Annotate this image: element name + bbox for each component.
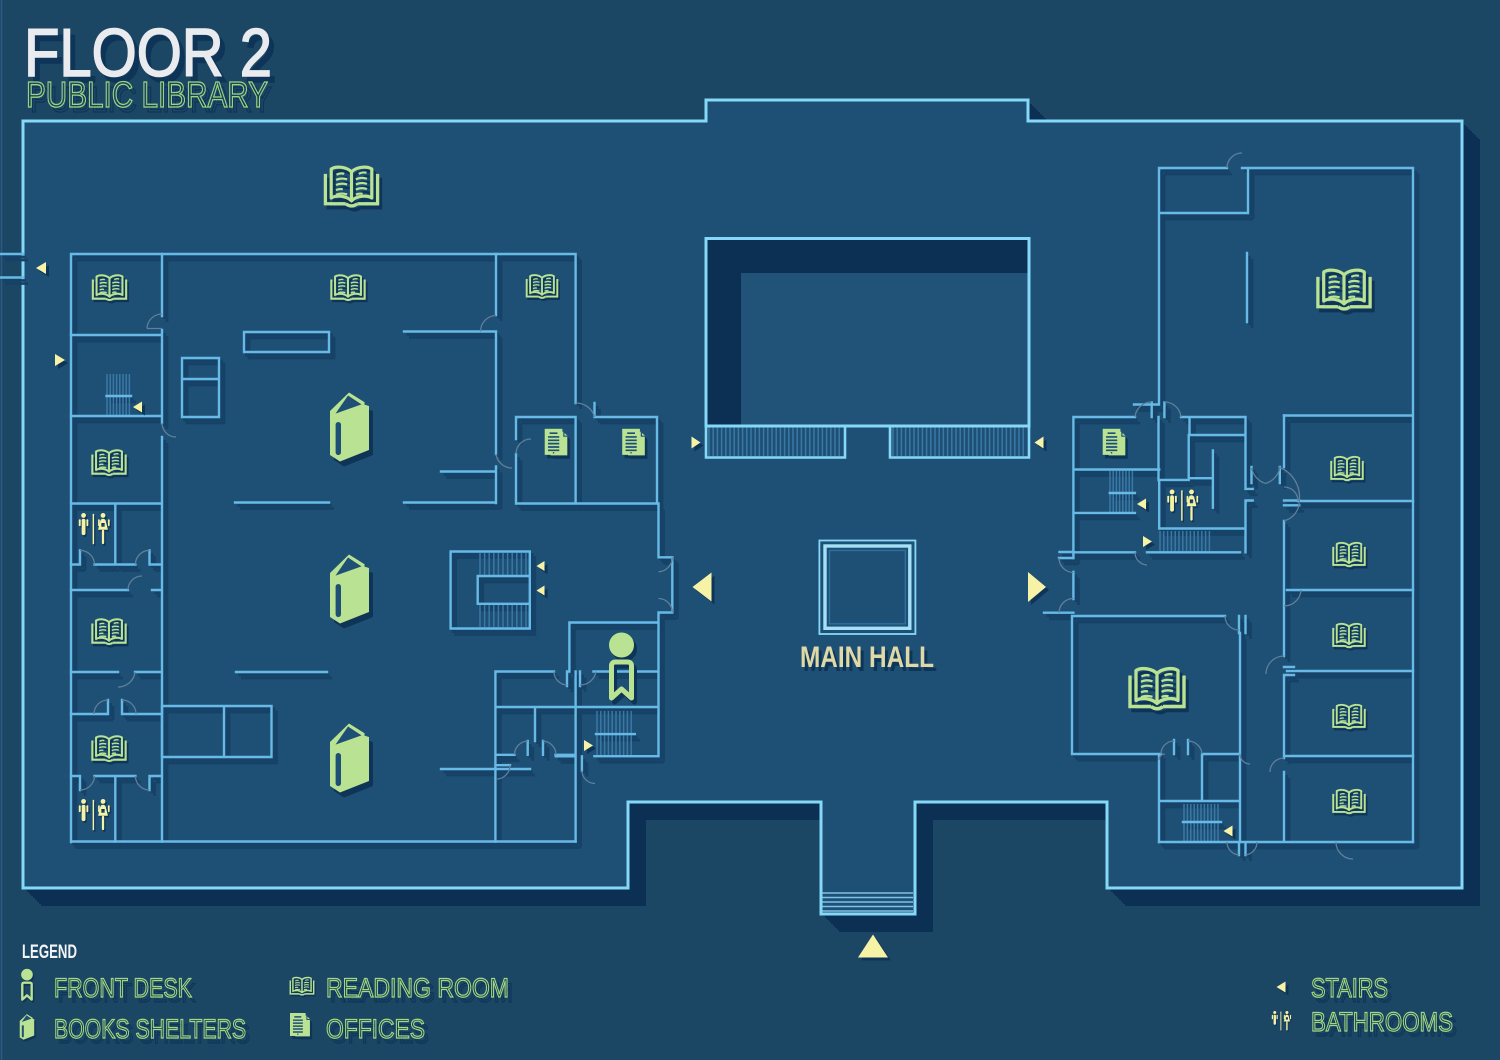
svg-text:BOOKS SHELTERS: BOOKS SHELTERS xyxy=(54,1014,246,1044)
svg-text:OFFICES: OFFICES xyxy=(326,1014,425,1044)
svg-text:PUBLIC LIBRARY: PUBLIC LIBRARY xyxy=(26,74,268,115)
svg-text:READING ROOM: READING ROOM xyxy=(326,973,509,1003)
svg-text:LEGEND: LEGEND xyxy=(22,942,77,963)
svg-text:MAIN HALL: MAIN HALL xyxy=(800,641,934,674)
svg-text:FRONT DESK: FRONT DESK xyxy=(54,973,192,1003)
svg-text:BATHROOMS: BATHROOMS xyxy=(1311,1007,1453,1037)
svg-text:STAIRS: STAIRS xyxy=(1311,973,1388,1003)
